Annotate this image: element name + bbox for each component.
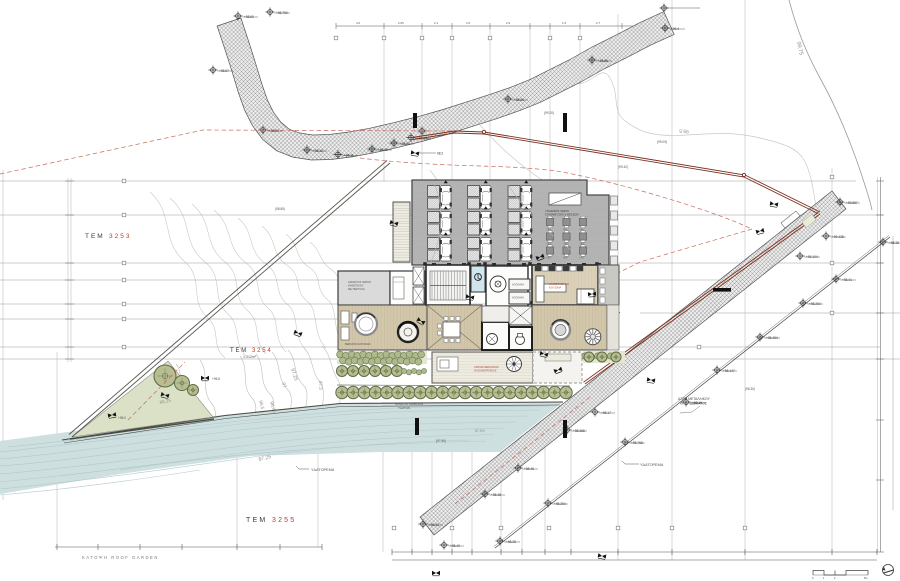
svg-text:+98.254: +98.254 [554, 502, 566, 506]
svg-text:+98.768: +98.768 [631, 441, 643, 445]
svg-text:+98.16: +98.16 [692, 401, 702, 405]
svg-text:+98.46: +98.46 [524, 467, 534, 471]
svg-text:+98.17: +98.17 [601, 411, 611, 415]
svg-text:+96.8: +96.8 [212, 377, 220, 381]
svg-text:3255: 3255 [272, 517, 296, 524]
svg-text:1.5: 1.5 [562, 21, 567, 25]
svg-text:1.012m²: 1.012m² [243, 355, 257, 359]
svg-text:(98.30): (98.30) [745, 387, 755, 391]
svg-text:KATOΨH ROOF GARDEN: KATOΨH ROOF GARDEN [82, 555, 159, 560]
svg-text:98.2: 98.2 [437, 152, 443, 156]
svg-text:+98.264: +98.264 [809, 302, 821, 306]
svg-text:4.0: 4.0 [356, 21, 361, 25]
svg-text:2.9: 2.9 [506, 21, 511, 25]
svg-text:TEM: TEM [246, 517, 267, 524]
svg-text:+98.147: +98.147 [723, 369, 735, 373]
svg-text:2.65: 2.65 [398, 21, 404, 25]
svg-text:ANOIKTOΣ XΩPOΣ: ANOIKTOΣ XΩPOΣ [348, 280, 371, 284]
svg-text:+98.454: +98.454 [766, 336, 778, 340]
svg-text:+98.48: +98.48 [491, 493, 501, 497]
svg-text:+96.0: +96.0 [118, 416, 126, 420]
svg-text:+98.41: +98.41 [842, 278, 852, 282]
svg-text:(99.20): (99.20) [544, 111, 554, 115]
svg-text:3253: 3253 [109, 233, 131, 240]
svg-text:YΔATOPEMA: YΔATOPEMA [640, 463, 664, 467]
svg-text:99.5: 99.5 [679, 127, 689, 134]
svg-text:YΔATOPEMA: YΔATOPEMA [311, 468, 335, 472]
svg-text:KAΘ: KAΘ [563, 228, 568, 231]
svg-text:KOYZINA: KOYZINA [549, 286, 561, 290]
svg-text:KAΘ: KAΘ [546, 256, 551, 259]
svg-text:(99.03): (99.03) [657, 140, 667, 144]
svg-text:3254: 3254 [252, 348, 273, 354]
svg-text:2.7: 2.7 [596, 21, 601, 25]
svg-text:AΠOΘHKH: AΠOΘHKH [512, 297, 524, 300]
svg-text:5m: 5m [864, 576, 868, 580]
svg-text:KAΘIΣTIKOY: KAΘIΣTIKOY [348, 284, 364, 288]
svg-text:+98.60: +98.60 [244, 15, 254, 19]
svg-text:YΔATΩN: YΔATΩN [398, 406, 410, 410]
svg-text:KAΘ: KAΘ [579, 228, 584, 231]
svg-text:AΠOΘHKH: AΠOΘHKH [512, 284, 524, 287]
svg-text:+98.368: +98.368 [573, 429, 585, 433]
svg-text:87.0m: 87.0m [475, 429, 485, 433]
svg-text:BΕPANTA KATOIKIAΣ: BΕPANTA KATOIKIAΣ [345, 342, 371, 346]
svg-text:2.1: 2.1 [434, 21, 439, 25]
svg-text:97.5: 97.5 [318, 381, 323, 391]
svg-text:(98.80): (98.80) [275, 207, 285, 211]
svg-text:+99.4: +99.4 [671, 27, 679, 31]
svg-text:KAΘ: KAΘ [563, 256, 568, 259]
svg-text:(97.60): (97.60) [436, 439, 446, 443]
svg-text:ME ΠEPΓOΛA: ME ΠEPΓOΛA [348, 287, 365, 291]
svg-text:+99.104: +99.104 [806, 255, 818, 259]
svg-text:2.6: 2.6 [466, 21, 471, 25]
svg-text:TEM: TEM [85, 233, 105, 240]
svg-text:HΛIOΘEPAΠEIAΣ: HΛIOΘEPAΠEIAΣ [474, 369, 497, 373]
svg-text:TEM: TEM [230, 348, 248, 354]
svg-text:ΣTAΘMEYΣHΣ 9 ΘEΣEΩN: ΣTAΘMEYΣHΣ 9 ΘEΣEΩN [545, 213, 579, 217]
svg-text:(99.42): (99.42) [618, 165, 628, 169]
